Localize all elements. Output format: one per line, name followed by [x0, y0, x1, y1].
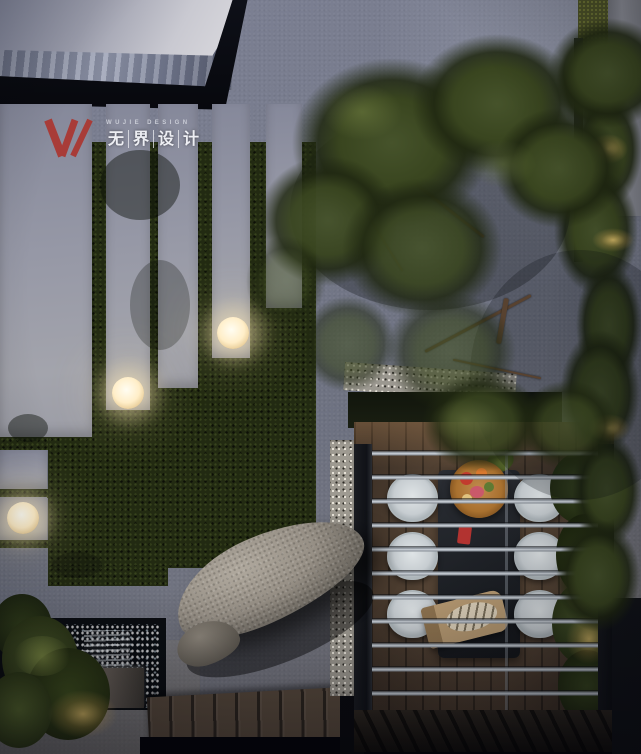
- canopy-highlight: [430, 398, 500, 442]
- pergola-deck-edge: [354, 710, 614, 752]
- canopy-highlight: [470, 140, 536, 188]
- logo-zh-char: 界: [128, 130, 153, 148]
- paving-slab: [0, 450, 47, 489]
- shrub: [556, 520, 640, 632]
- leaf-shadow: [100, 150, 180, 220]
- canopy-highlight: [322, 84, 402, 140]
- sphere-lamp: [217, 317, 249, 349]
- logo-zh-text: 无 界 设 计: [104, 130, 203, 148]
- leaf-shadow: [8, 414, 48, 442]
- hedge-light: [592, 228, 634, 252]
- leaf-shadow: [52, 552, 102, 578]
- fern-highlight: [14, 636, 70, 676]
- plant-uplight: [48, 690, 118, 738]
- leaf-shadow: [130, 260, 190, 350]
- logo-zh-char: 计: [178, 130, 203, 148]
- logo-zh-char: 无: [104, 130, 128, 148]
- roof-slab: [0, 0, 247, 58]
- logo-zh-char: 设: [153, 130, 178, 148]
- courtyard-render: WUJIE DESIGN 无 界 设 计: [0, 0, 641, 754]
- brand-logo: WUJIE DESIGN 无 界 设 计: [44, 117, 203, 159]
- sphere-lamp: [112, 377, 144, 409]
- tree-canopy: [300, 296, 396, 392]
- logo-text: WUJIE DESIGN 无 界 设 计: [104, 117, 203, 148]
- sphere-lamp: [7, 502, 39, 534]
- w-slash-logo-icon: [44, 117, 94, 159]
- logo-en-text: WUJIE DESIGN: [106, 120, 203, 126]
- tree-canopy: [518, 380, 618, 470]
